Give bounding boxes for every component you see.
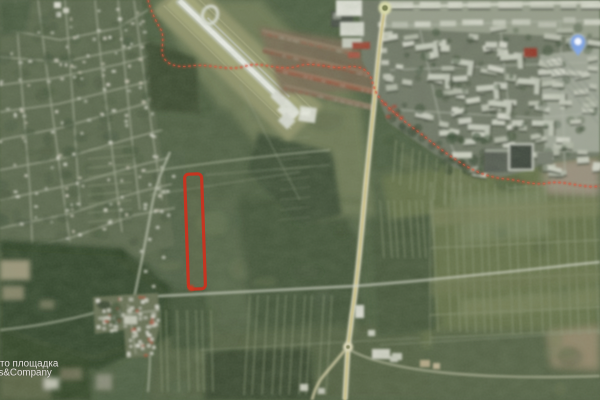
svg-text:оs&Company: оs&Company <box>0 368 52 379</box>
